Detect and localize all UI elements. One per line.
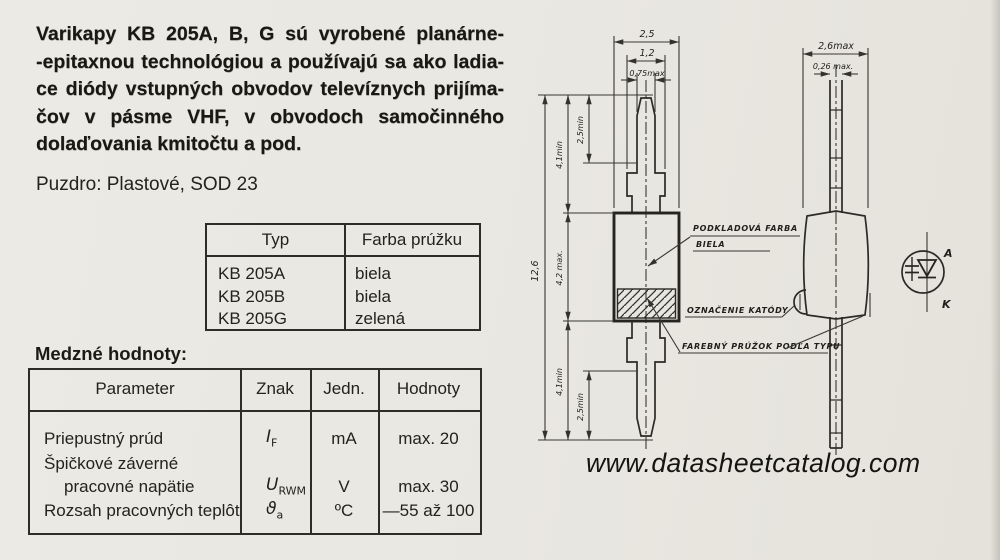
unit-cell: V	[310, 477, 378, 497]
symbol-main: U	[266, 475, 278, 495]
table-row-farba: biela	[355, 264, 391, 284]
symbol-sub: F	[271, 436, 277, 449]
column-header-znak: Znak	[240, 379, 310, 399]
table-row-farba: biela	[355, 287, 391, 307]
dim-label: 2,6max	[818, 41, 854, 52]
unit-cell: ºC	[310, 501, 378, 521]
intro-line: čov v pásme VHF, v obvodoch samočinného	[36, 104, 504, 132]
column-header-parameter: Parameter	[30, 379, 240, 399]
column-header-jedn: Jedn.	[310, 379, 378, 399]
intro-line: dolaďovania kmitočtu a pod.	[36, 131, 504, 159]
dim-label: 0,26 max.	[813, 62, 853, 71]
symbol-cell: ϑa	[266, 499, 283, 521]
symbol-cell: IF	[266, 427, 277, 449]
param-cell: Špičkové záverné	[44, 454, 178, 474]
dim-label: 2,5min	[576, 116, 585, 144]
watermark-url: www.datasheetcatalog.com	[586, 448, 921, 479]
callout-base-color: PODKLADOVÁ FARBA	[693, 222, 798, 233]
column-header-typ: Typ	[207, 230, 344, 250]
table-row-farba: zelená	[355, 309, 405, 329]
type-color-table: Typ Farba prúžku KB 205A biela KB 205B b…	[205, 223, 481, 331]
table-divider	[207, 255, 479, 257]
dimension-tip-top: 2,5min	[576, 95, 589, 163]
dim-label: 4,2 max.	[555, 250, 564, 285]
dim-label: 1,2	[639, 48, 654, 59]
intro-line: Varikapy KB 205A, B, G sú vyrobené planá…	[36, 21, 504, 49]
value-cell: max. 20	[378, 429, 479, 449]
param-cell: Priepustný prúd	[44, 429, 163, 449]
dimension-lead-bottom: 4,1min	[555, 321, 568, 440]
table-row-typ: KB 205G	[218, 309, 287, 329]
dimension-tip-bottom: 2,5min	[576, 371, 589, 440]
symbol-sub: a	[277, 508, 284, 521]
package-line: Puzdro: Plastové, SOD 23	[36, 174, 258, 196]
unit-cell: mA	[310, 429, 378, 449]
intro-paragraph: Varikapy KB 205A, B, G sú vyrobené planá…	[36, 21, 504, 159]
leader-to-body	[648, 237, 690, 266]
symbol-main: ϑ	[266, 499, 277, 519]
dim-label: 4,1min	[555, 141, 564, 169]
param-cell: Rozsah pracovných teplôt	[44, 501, 240, 521]
limits-table: Parameter Znak Jedn. Hodnoty Priepustný …	[28, 368, 482, 535]
symbol-sub: RWM	[278, 484, 306, 497]
dimension-total-height: 12,6	[530, 95, 545, 440]
dimension-body-height: 4,2 max.	[555, 213, 568, 321]
table-row-typ: KB 205B	[218, 287, 285, 307]
column-header-farba: Farba prúžku	[344, 230, 480, 250]
package-technical-drawing: 2,5 1,2 0,75max	[520, 10, 1000, 500]
dim-label: 2,5min	[576, 393, 585, 421]
front-view: 2,5 1,2 0,75max	[530, 29, 679, 450]
dimension-lead-top: 4,1min	[555, 95, 568, 213]
intro-line: -epitaxnou technológiou a používajú sa a…	[36, 49, 504, 77]
callout-base-color-2: BIELA	[696, 240, 725, 249]
column-header-hodnoty: Hodnoty	[378, 379, 479, 399]
dim-label: 2,5	[639, 29, 654, 40]
symbol-cell: URWM	[266, 475, 306, 497]
dim-label: 12,6	[530, 260, 541, 281]
intro-line: ce diódy vstupných obvodov televíznych p…	[36, 76, 504, 104]
datasheet-scan-page: Varikapy KB 205A, B, G sú vyrobené planá…	[0, 0, 1000, 560]
callout-stripe: FAREBNÝ PRÚŽOK PODĽA TYPU	[682, 340, 840, 351]
anode-label: A	[943, 247, 953, 260]
side-view: 2,6max 0,26 max.	[794, 41, 870, 455]
value-cell: —55 až 100	[378, 501, 479, 521]
color-stripe	[618, 289, 676, 318]
cathode-label: K	[942, 298, 952, 311]
limits-heading: Medzné hodnoty:	[35, 343, 187, 365]
dim-label: 0,75max	[629, 69, 665, 78]
value-cell: max. 30	[378, 477, 479, 497]
dim-label: 4,1min	[555, 368, 564, 396]
dimension-lead-thickness: 0,26 max.	[813, 62, 858, 74]
table-row-typ: KB 205A	[218, 264, 285, 284]
param-cell: pracovné napätie	[64, 477, 194, 497]
table-divider	[30, 410, 480, 412]
callout-cathode-mark: OZNAČENIE KATÓDY	[687, 304, 789, 315]
varicap-symbol: A K	[902, 232, 953, 312]
